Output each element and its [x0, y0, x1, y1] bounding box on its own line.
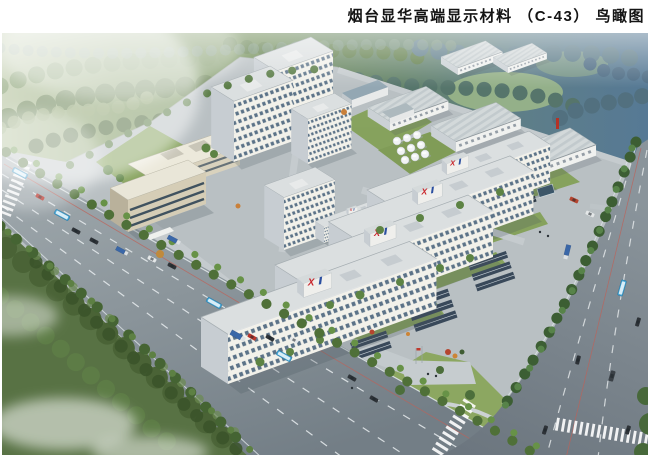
aerial-rendering: X — [2, 33, 648, 455]
page-title: 烟台显华高端显示材料 （C-43） 鸟瞰图 — [348, 5, 645, 26]
red-totem-sign — [556, 118, 559, 129]
presentation-page: 烟台显华高端显示材料 （C-43） 鸟瞰图 — [0, 0, 650, 460]
